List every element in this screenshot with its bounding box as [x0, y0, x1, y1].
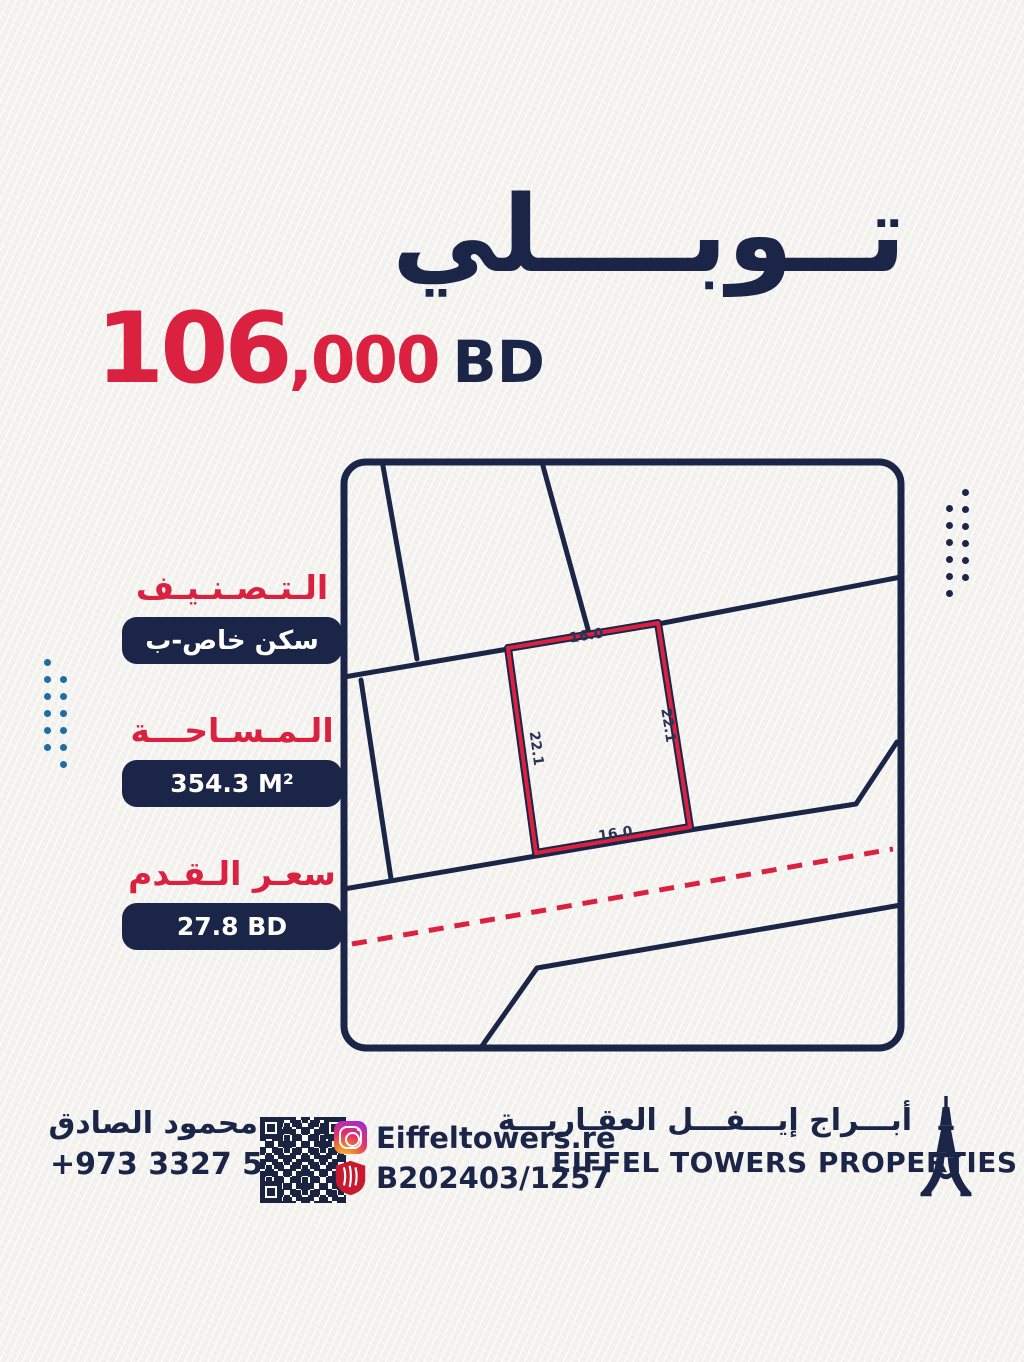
dots-decoration-navy	[946, 489, 969, 597]
qr-finder	[260, 1181, 282, 1203]
brand-name-arabic: أبـــراج إيـــفـــل العقـاريـــة	[552, 1100, 912, 1142]
spec-value-badge: 354.3 M²	[122, 760, 342, 807]
dimension-top: 16.0	[568, 625, 605, 646]
spec-label: الـمـسـاحـــة	[122, 711, 342, 750]
spec-value-badge: سكن خاص-ب	[122, 617, 342, 664]
instagram-icon	[334, 1121, 367, 1154]
price-main: 106	[96, 300, 289, 398]
agent-phone: +973 3327 5261	[50, 1147, 258, 1182]
dot-column	[962, 489, 969, 597]
location-title: تــوبــــلي	[506, 158, 906, 312]
qr-finder	[260, 1117, 282, 1139]
road-centerline	[352, 849, 893, 944]
spec-label: الـتـصـنـيـف	[122, 568, 342, 607]
agent-contact: محمود الصادق +973 3327 5261	[50, 1106, 258, 1182]
brand-block: أبـــراج إيـــفـــل العقـاريـــة EIFFEL …	[552, 1100, 912, 1179]
eiffel-tower-icon	[920, 1096, 972, 1198]
parcel-lines	[344, 466, 901, 1046]
dot-column	[44, 659, 51, 768]
spec-area: الـمـسـاحـــة 354.3 M²	[122, 711, 342, 807]
dot-column	[60, 676, 67, 768]
dot-column	[946, 505, 953, 597]
price: 106 ,000 BD	[96, 300, 545, 398]
shield-license-icon	[334, 1160, 367, 1196]
spec-label: سعـر الـقـدم	[122, 854, 342, 893]
dimension-left: 22.1	[526, 730, 547, 766]
price-currency: BD	[452, 333, 544, 391]
spec-classification: الـتـصـنـيـف سكن خاص-ب	[122, 568, 342, 664]
plot-map: 16.0 22.1 22.1 16.0	[340, 458, 905, 1052]
spec-list: الـتـصـنـيـف سكن خاص-ب الـمـسـاحـــة 354…	[122, 568, 342, 997]
spec-value-badge: 27.8 BD	[122, 903, 342, 950]
dots-decoration-blue	[44, 659, 67, 768]
price-thousands: ,000	[289, 329, 439, 393]
brand-name-english: EIFFEL TOWERS PROPERTIES	[552, 1146, 912, 1179]
map-border	[344, 462, 901, 1048]
spec-price-per-foot: سعـر الـقـدم 27.8 BD	[122, 854, 342, 950]
agent-name: محمود الصادق	[50, 1106, 258, 1141]
